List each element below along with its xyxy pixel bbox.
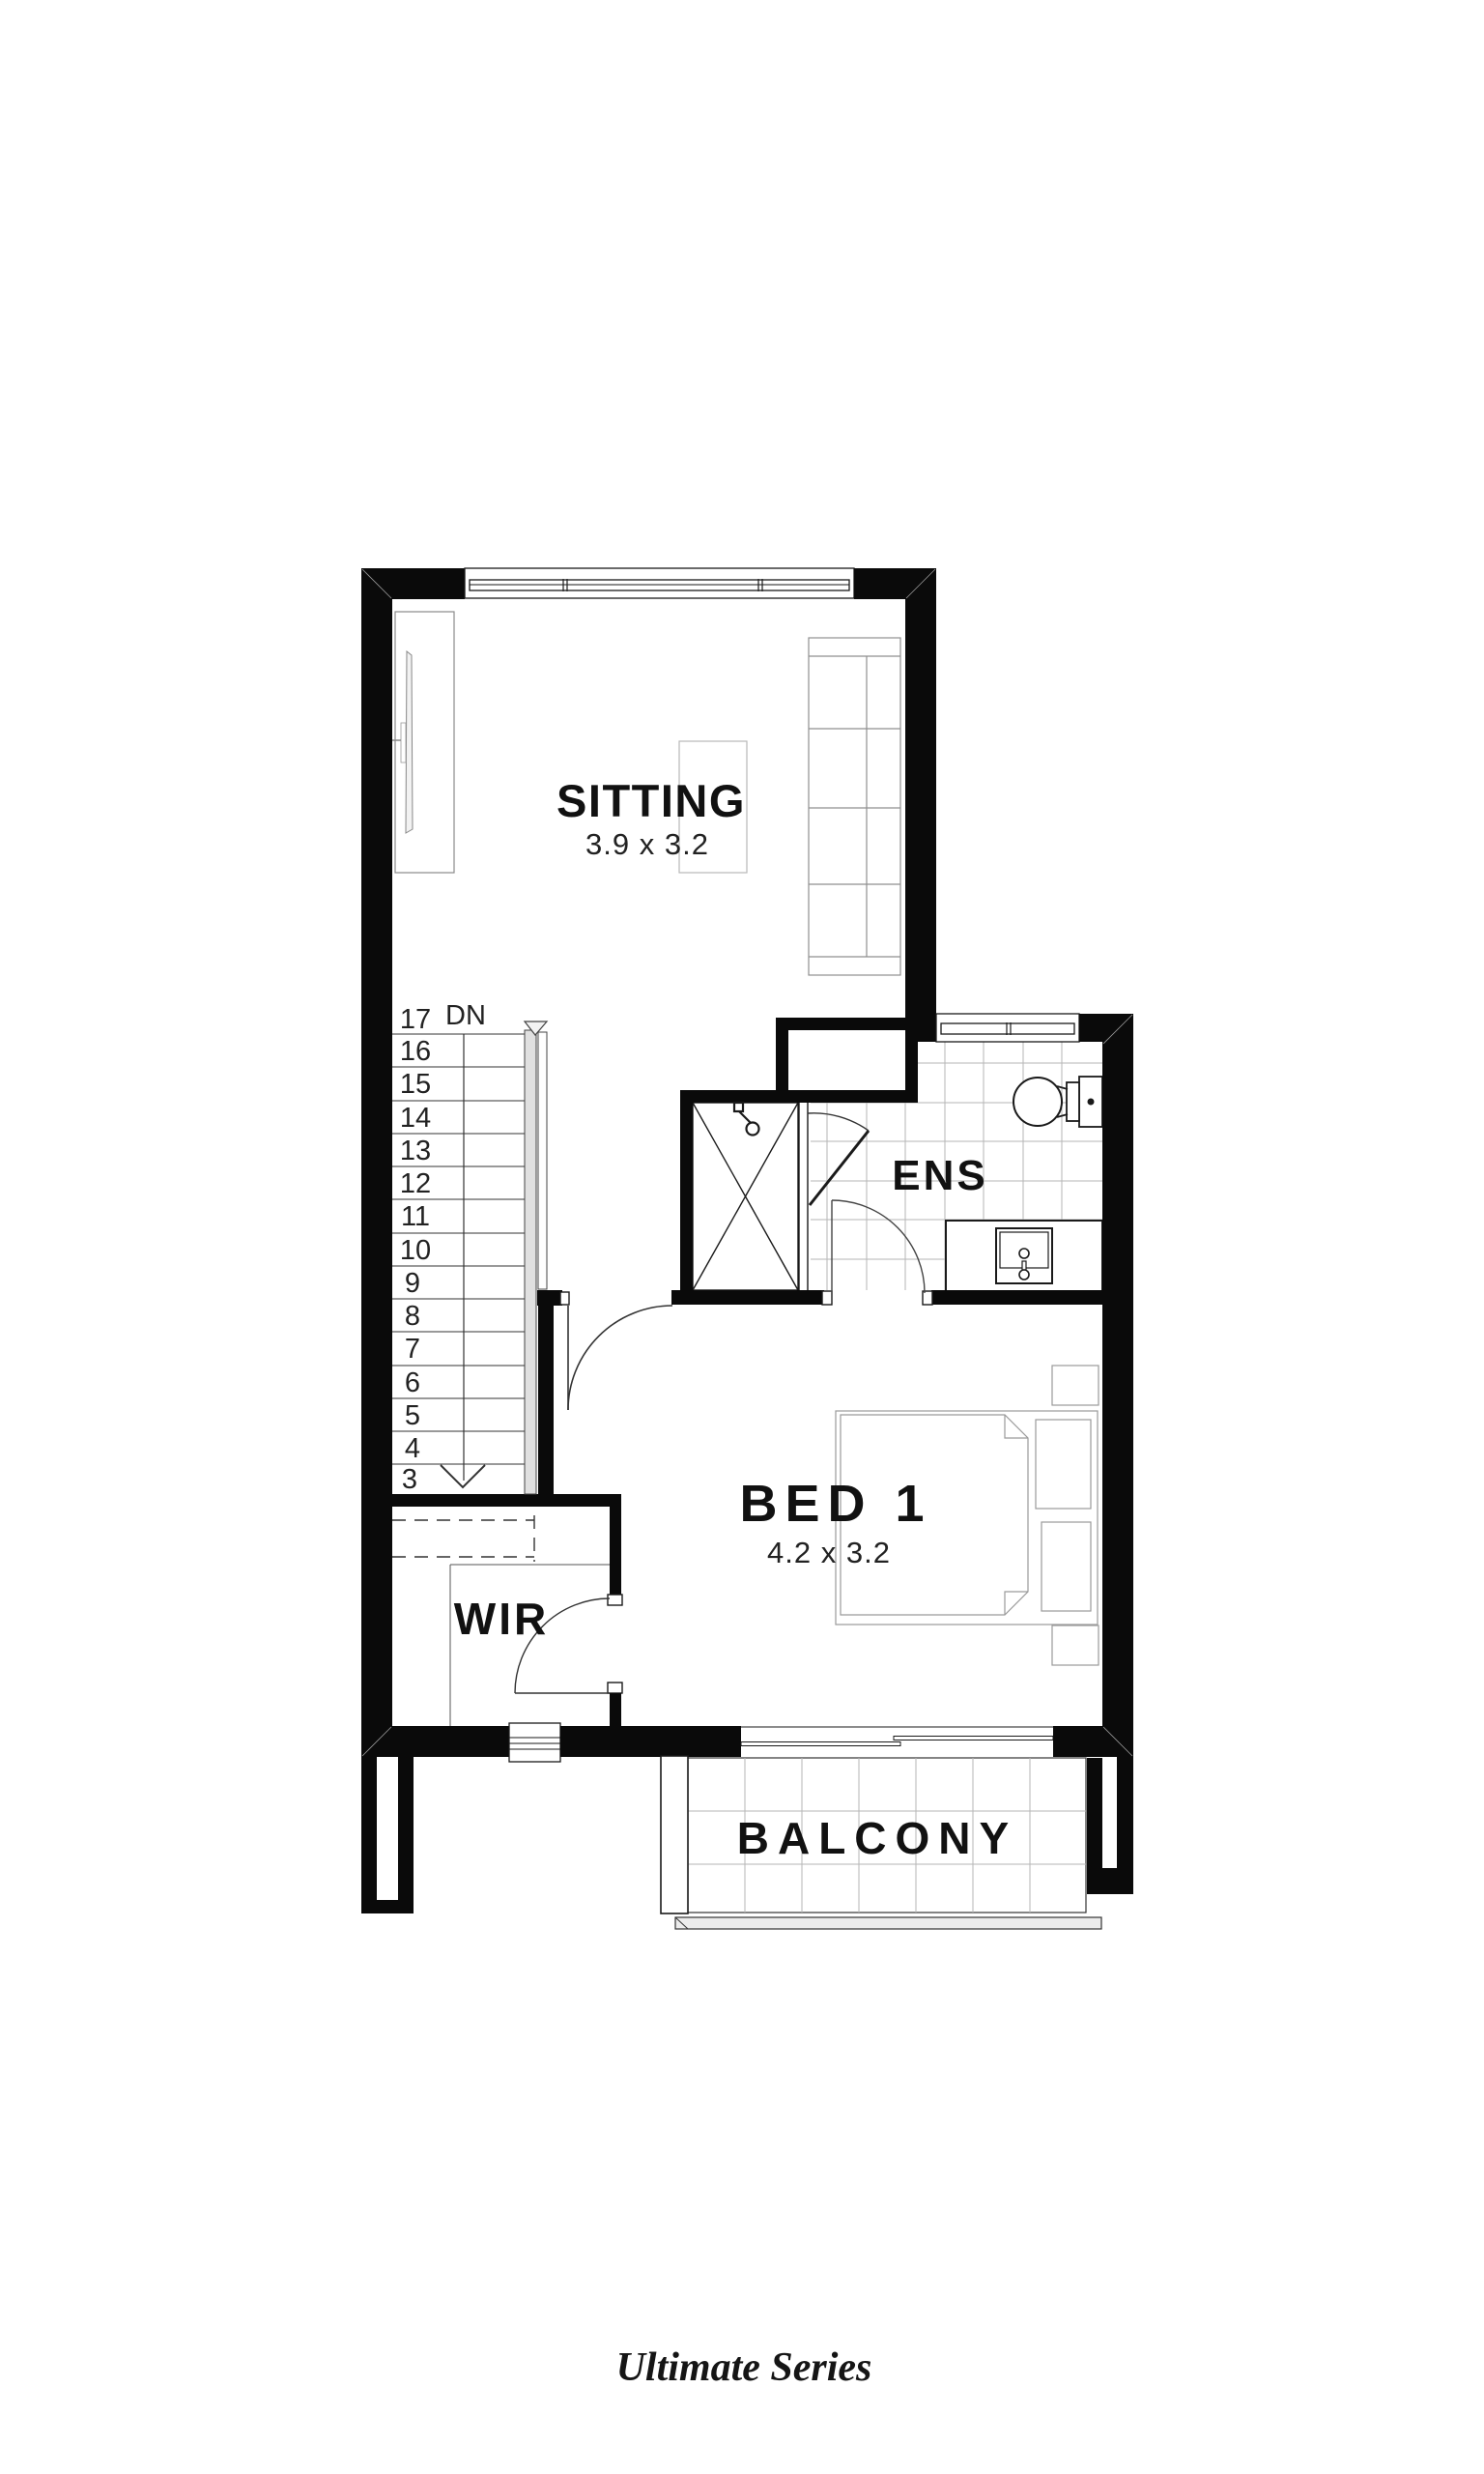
svg-text:DN: DN <box>445 1000 486 1031</box>
svg-text:16: 16 <box>400 1036 431 1067</box>
svg-text:13: 13 <box>400 1136 431 1166</box>
svg-text:SITTING: SITTING <box>556 775 746 826</box>
svg-text:BALCONY: BALCONY <box>737 1813 1017 1863</box>
svg-text:9: 9 <box>405 1268 420 1299</box>
svg-text:4.2 x 3.2: 4.2 x 3.2 <box>767 1536 891 1569</box>
svg-text:10: 10 <box>400 1235 431 1266</box>
svg-text:8: 8 <box>405 1301 420 1332</box>
svg-text:7: 7 <box>405 1334 420 1365</box>
svg-text:15: 15 <box>400 1069 431 1100</box>
svg-text:4: 4 <box>405 1433 420 1464</box>
svg-text:12: 12 <box>400 1168 431 1199</box>
svg-text:3.9 x 3.2: 3.9 x 3.2 <box>585 827 709 861</box>
svg-text:Ultimate Series: Ultimate Series <box>616 2345 872 2390</box>
svg-text:3: 3 <box>402 1464 417 1495</box>
svg-text:BED 1: BED 1 <box>739 1475 931 1533</box>
svg-text:14: 14 <box>400 1103 431 1134</box>
svg-text:6: 6 <box>405 1367 420 1398</box>
svg-text:5: 5 <box>405 1400 420 1431</box>
svg-text:17: 17 <box>400 1004 431 1035</box>
svg-text:11: 11 <box>401 1201 430 1232</box>
svg-text:ENS: ENS <box>892 1152 987 1199</box>
svg-text:WIR: WIR <box>454 1594 549 1644</box>
